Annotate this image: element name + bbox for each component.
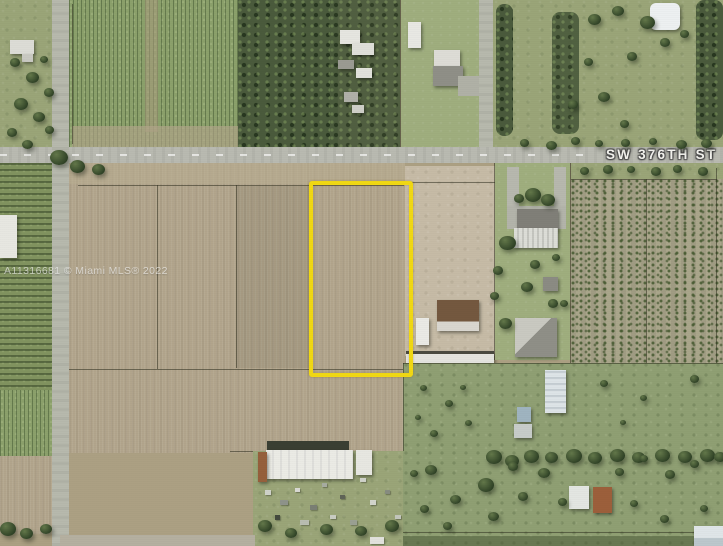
tree (700, 505, 708, 512)
tree (320, 524, 333, 535)
tree (478, 478, 494, 492)
tree (525, 188, 541, 202)
street-label: SW 376TH ST (606, 147, 717, 162)
tree (627, 52, 637, 61)
yard-equipment (350, 520, 357, 525)
rear-shed (515, 318, 557, 357)
tree (595, 140, 603, 147)
white-shed-br (569, 486, 589, 509)
tree (640, 455, 648, 462)
tree (26, 72, 39, 83)
mobile-home (352, 43, 374, 55)
yard-equipment (280, 500, 288, 505)
tall-white-shed (545, 370, 566, 413)
tree (420, 505, 429, 513)
yard-equipment (330, 515, 336, 519)
tree (385, 520, 399, 532)
tree (610, 449, 625, 462)
tree (465, 420, 472, 426)
tree (660, 515, 669, 523)
tree (571, 137, 580, 145)
orchard-boundary (571, 179, 717, 180)
crop-rows-left-lower (0, 390, 55, 456)
watermark: A11316681 © Miami MLS® 2022 (4, 265, 168, 277)
shed (338, 60, 354, 69)
tree (258, 520, 272, 532)
tree (520, 139, 529, 147)
large-white-barn (266, 450, 353, 479)
yard-equipment (295, 488, 300, 492)
yard-equipment (300, 520, 309, 525)
highlighted-parcel-outline (309, 181, 413, 377)
tree (499, 318, 512, 329)
tree (20, 528, 33, 539)
tree (588, 14, 601, 25)
yard-equipment (395, 515, 401, 519)
tree (430, 430, 438, 437)
yard-equipment (385, 490, 390, 494)
rust-trailer (258, 452, 267, 482)
orchard-right (571, 179, 723, 365)
tree (552, 254, 560, 261)
tree (92, 164, 105, 175)
field-boundary-line (157, 185, 158, 369)
tree (70, 160, 85, 173)
white-canopy-tent (650, 3, 680, 30)
tree (584, 58, 593, 66)
tree (10, 58, 20, 67)
tree (655, 449, 670, 462)
tree-row-right-edge (696, 0, 723, 140)
tree (410, 470, 418, 477)
grass-parcel-top-right (493, 0, 723, 150)
tree (548, 299, 558, 308)
field-boundary-line (236, 185, 237, 368)
building-bottom-corner (694, 526, 723, 546)
barn-left-edge (0, 215, 17, 258)
bottom-vegetation-band (403, 536, 723, 546)
tree (45, 126, 54, 134)
tree (665, 470, 675, 479)
tree (698, 167, 708, 176)
yard-equipment (360, 478, 366, 482)
tree (630, 500, 638, 507)
tree (660, 38, 670, 47)
shed-top-left (22, 54, 33, 62)
yard-equipment (310, 505, 317, 510)
mobile-home (340, 30, 360, 44)
tree (640, 395, 647, 401)
side-road-north (479, 0, 493, 150)
tree (673, 165, 682, 173)
tree (640, 16, 655, 29)
tree (615, 468, 624, 476)
tree (690, 460, 699, 468)
tree (651, 167, 661, 176)
tree (680, 30, 689, 38)
tree (14, 98, 28, 110)
tree (0, 522, 16, 536)
field-subplot-shade (236, 186, 312, 368)
driveway-u-left (507, 167, 519, 209)
white-trailer (408, 22, 421, 48)
tree-grove (238, 0, 338, 151)
tree (588, 452, 602, 464)
small-shed (543, 277, 558, 291)
gray-shed (514, 424, 532, 438)
road-center-dashes (0, 154, 600, 156)
property-line (403, 532, 723, 533)
house-top-left (10, 40, 34, 54)
small-white-shed (356, 450, 372, 475)
tree (545, 452, 558, 463)
yard-equipment (275, 515, 280, 520)
tree (40, 56, 48, 63)
tree (518, 492, 528, 501)
tree (714, 452, 723, 462)
house-hip-roof (517, 209, 558, 230)
tree (603, 165, 613, 174)
tree (649, 138, 657, 145)
tree (44, 88, 54, 97)
yard-equipment (340, 495, 345, 499)
yard-equipment (370, 500, 376, 505)
tree (700, 449, 715, 462)
house-roof-white (434, 50, 460, 66)
shed (356, 68, 372, 78)
tree (445, 400, 453, 407)
field-headland (72, 126, 238, 148)
driveway-u-right (554, 167, 566, 209)
shed (344, 92, 358, 102)
tree (600, 380, 608, 387)
tree (558, 498, 567, 506)
tree (530, 260, 540, 269)
tree (420, 385, 427, 391)
house-brown-roof (437, 300, 479, 331)
white-truck (416, 318, 429, 345)
aerial-photo: SW 376TH ST A11316681 © Miami MLS® 2022 (0, 0, 723, 546)
yard-equipment (370, 537, 384, 544)
tree (541, 194, 555, 206)
tree (580, 167, 589, 175)
rust-roof-shed (593, 487, 612, 513)
tree (7, 128, 17, 137)
hedge-row (496, 4, 513, 136)
tree (560, 300, 568, 307)
tree (490, 292, 499, 300)
tree (627, 166, 635, 173)
orchard-divider (646, 179, 647, 365)
dirt-track-bottom (60, 535, 255, 546)
property-line (405, 182, 495, 183)
tree (620, 120, 629, 128)
field-edge-line (72, 4, 73, 144)
yard-equipment (322, 483, 327, 487)
tree (443, 522, 452, 530)
blue-shed (517, 407, 531, 422)
tree (486, 450, 502, 464)
orchard-edge (716, 168, 717, 365)
tree (690, 375, 699, 383)
tree (621, 139, 630, 147)
property-line (403, 363, 723, 364)
hedge-row (552, 12, 579, 134)
farm-track (145, 0, 158, 132)
tree (493, 266, 503, 275)
tree (508, 462, 518, 471)
tree (514, 194, 524, 203)
yard-equipment (265, 490, 271, 495)
tree (568, 100, 578, 109)
tree (566, 449, 582, 463)
shed (352, 105, 364, 113)
tree (524, 450, 539, 463)
house-metal-roof (514, 228, 558, 248)
